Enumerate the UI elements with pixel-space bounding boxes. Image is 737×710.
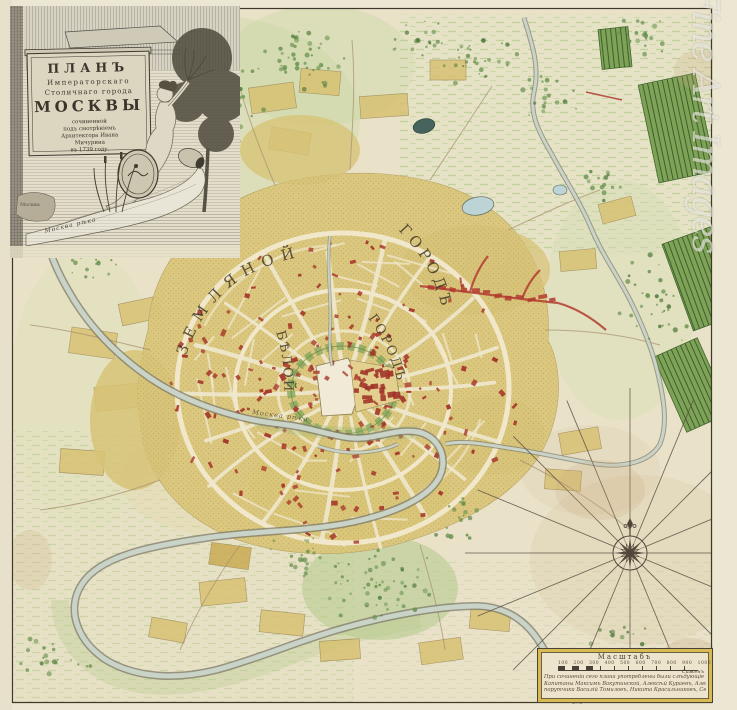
cartouche-caption: Москва — [20, 202, 40, 208]
cartouche-title-text: ПЛАНЪ Императорскаго Столичнаго города М… — [27, 51, 151, 156]
scale-bar — [558, 666, 698, 671]
title-line: ПЛАНЪ — [27, 61, 149, 76]
coat-of-arms-medallion — [118, 150, 158, 198]
scale-unit: Саженъ — [682, 669, 704, 675]
scale-legend-box: Масштабъ 100 200 300 400 500 600 700 800… — [537, 648, 713, 703]
title-cartouche: ПЛАНЪ Императорскаго Столичнаго города М… — [10, 6, 240, 258]
title-line: Императорскаго — [28, 78, 150, 88]
surveyors-note: При сочиненіи сего плана употреблены был… — [544, 674, 706, 694]
note-line: порутчики Василій Томиловъ, Никита Краси… — [544, 687, 706, 694]
title-line: МОСКВЫ — [28, 98, 150, 116]
legend-inner: Масштабъ 100 200 300 400 500 600 700 800… — [544, 653, 706, 699]
scale-title: Масштабъ — [544, 653, 706, 661]
pond — [553, 185, 567, 195]
antique-map-of-moscow: ЗЕМЛЯНОЙ ГОРОДЪ БѢЛОЙ ГОРОДЪ Москва рѣка — [0, 0, 737, 710]
